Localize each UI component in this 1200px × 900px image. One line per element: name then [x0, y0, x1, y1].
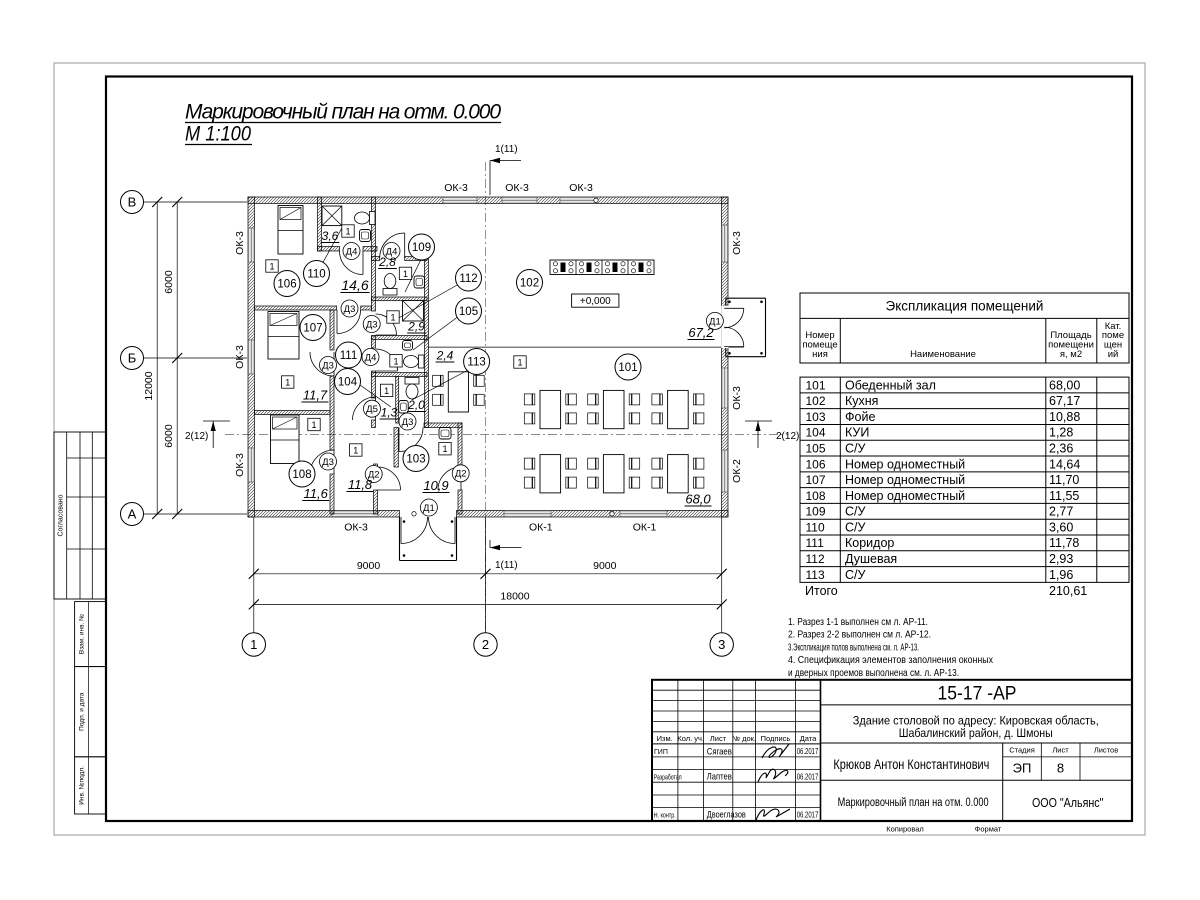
svg-text:67,2: 67,2: [688, 325, 714, 340]
svg-text:111: 111: [340, 350, 357, 362]
svg-text:1,28: 1,28: [1049, 426, 1073, 440]
svg-text:ОК-3: ОК-3: [731, 386, 743, 410]
svg-text:ОК-3: ОК-3: [505, 182, 529, 194]
svg-text:15-17 -АР: 15-17 -АР: [938, 684, 1017, 705]
svg-text:ОК-1: ОК-1: [633, 522, 657, 534]
svg-text:С/У: С/У: [845, 505, 866, 519]
svg-text:ОК-3: ОК-3: [731, 231, 743, 255]
svg-text:104: 104: [338, 377, 358, 389]
svg-text:Двоеглазов: Двоеглазов: [707, 810, 746, 821]
svg-text:Наименование: Наименование: [910, 349, 976, 360]
svg-text:Итого: Итого: [805, 584, 838, 598]
svg-text:Д5: Д5: [366, 404, 378, 415]
svg-text:1: 1: [250, 637, 257, 652]
svg-text:КУИ: КУИ: [845, 426, 869, 440]
svg-text:11,7: 11,7: [303, 388, 328, 403]
svg-text:Кухня: Кухня: [845, 394, 878, 408]
svg-text:11,70: 11,70: [1049, 473, 1079, 487]
svg-text:Маркировочный план на отм. 0.: Маркировочный план на отм. 0.000: [838, 797, 989, 809]
svg-text:Д3: Д3: [366, 319, 378, 330]
svg-text:68,00: 68,00: [1049, 378, 1080, 392]
svg-text:Номер одноместный: Номер одноместный: [845, 489, 965, 503]
svg-text:Лист: Лист: [1052, 746, 1069, 755]
svg-text:9000: 9000: [357, 560, 381, 572]
svg-text:10,9: 10,9: [423, 478, 448, 493]
svg-text:110: 110: [806, 520, 825, 534]
svg-text:103: 103: [406, 454, 425, 466]
svg-text:107: 107: [806, 473, 826, 487]
svg-text:Б: Б: [128, 351, 137, 366]
svg-text:2,9: 2,9: [407, 320, 425, 334]
svg-text:1,96: 1,96: [1049, 568, 1073, 582]
svg-text:110: 110: [307, 269, 325, 281]
svg-text:9000: 9000: [593, 560, 617, 572]
svg-text:Д3: Д3: [344, 304, 356, 315]
svg-text:1: 1: [285, 378, 290, 388]
svg-text:3,6: 3,6: [322, 229, 339, 243]
svg-text:108: 108: [806, 489, 826, 503]
svg-text:С/У: С/У: [845, 520, 866, 534]
svg-text:106: 106: [277, 279, 296, 291]
svg-text:14,64: 14,64: [1049, 457, 1080, 471]
svg-text:Лаптев: Лаптев: [707, 772, 732, 783]
svg-text:1,3: 1,3: [381, 406, 398, 420]
svg-text:106: 106: [806, 457, 826, 471]
svg-text:С/У: С/У: [845, 568, 866, 582]
svg-text:1: 1: [353, 446, 358, 456]
svg-text:М 1:100: М 1:100: [185, 123, 251, 146]
svg-text:ОК-3: ОК-3: [234, 231, 246, 255]
svg-text:Согласовано: Согласовано: [58, 494, 65, 536]
svg-text:ГИП: ГИП: [654, 749, 668, 756]
svg-text:3.Экспликация полов выполнена: 3.Экспликация полов выполнена см. л. АР-…: [788, 642, 919, 653]
svg-text:06.2017: 06.2017: [797, 810, 819, 819]
svg-text:Разработал: Разработал: [654, 773, 682, 782]
svg-text:Стадия: Стадия: [1009, 746, 1035, 755]
svg-text:6000: 6000: [163, 424, 175, 448]
svg-text:06.2017: 06.2017: [797, 772, 819, 781]
svg-text:11,8: 11,8: [348, 477, 373, 492]
svg-text:112: 112: [806, 552, 825, 566]
svg-text:113: 113: [806, 568, 825, 582]
svg-text:Д4: Д4: [365, 352, 377, 363]
svg-text:Фойе: Фойе: [845, 410, 875, 424]
svg-text:ий: ий: [1108, 349, 1119, 360]
svg-text:3: 3: [718, 637, 725, 652]
svg-text:102: 102: [520, 278, 539, 290]
svg-text:2,0: 2,0: [407, 398, 425, 412]
svg-text:10,88: 10,88: [1049, 410, 1080, 424]
svg-text:Дата: Дата: [800, 734, 817, 743]
svg-text:2(12): 2(12): [776, 431, 799, 442]
svg-text:1(11): 1(11): [495, 144, 518, 155]
svg-text:Копировал: Копировал: [886, 825, 924, 834]
svg-text:Подпись: Подпись: [761, 734, 791, 743]
svg-text:Н. контр.: Н. контр.: [654, 811, 676, 820]
svg-text:8: 8: [1057, 761, 1064, 776]
svg-text:1: 1: [311, 420, 316, 430]
svg-text:ОК-2: ОК-2: [731, 459, 743, 483]
svg-text:Листов: Листов: [1094, 746, 1118, 755]
svg-text:67,17: 67,17: [1049, 394, 1080, 408]
svg-text:Коридор: Коридор: [845, 536, 894, 550]
svg-text:6000: 6000: [163, 270, 175, 294]
svg-text:Номер одноместный: Номер одноместный: [845, 457, 965, 471]
svg-text:1: 1: [384, 386, 389, 396]
svg-text:104: 104: [806, 426, 826, 440]
svg-text:06.2017: 06.2017: [797, 747, 819, 756]
svg-text:2,93: 2,93: [1049, 552, 1073, 566]
svg-text:1: 1: [393, 356, 398, 366]
svg-text:2,4: 2,4: [436, 349, 454, 363]
svg-text:107: 107: [303, 323, 322, 335]
svg-text:14,6: 14,6: [341, 277, 368, 293]
svg-text:ния: ния: [812, 349, 828, 360]
svg-text:Крюков Антон Константинович: Крюков Антон Константинович: [833, 757, 989, 772]
svg-text:Д3: Д3: [322, 360, 334, 371]
svg-text:113: 113: [467, 357, 485, 369]
svg-text:ОК-3: ОК-3: [344, 522, 368, 534]
svg-text:1. Разрез 1-1 выполнен см л. А: 1. Разрез 1-1 выполнен см л. АР-11.: [788, 617, 928, 628]
svg-text:1(11): 1(11): [495, 560, 518, 571]
svg-text:Подп. и дата: Подп. и дата: [79, 692, 86, 731]
svg-text:Формат: Формат: [975, 825, 1002, 834]
svg-text:ОК-3: ОК-3: [234, 453, 246, 477]
svg-text:я, м2: я, м2: [1060, 349, 1082, 360]
svg-text:109: 109: [806, 505, 826, 519]
svg-text:1: 1: [442, 444, 447, 454]
svg-text:18000: 18000: [500, 591, 529, 603]
svg-text:Номер одноместный: Номер одноместный: [845, 473, 965, 487]
svg-text:Экспликация помещений: Экспликация помещений: [886, 299, 1044, 314]
svg-text:Д1: Д1: [423, 503, 435, 514]
svg-text:105: 105: [806, 441, 826, 455]
svg-text:2,77: 2,77: [1049, 505, 1073, 519]
svg-text:11,55: 11,55: [1049, 489, 1079, 503]
svg-text:№ док.: № док.: [732, 734, 756, 743]
svg-text:112: 112: [459, 273, 477, 285]
svg-text:1: 1: [517, 358, 522, 368]
svg-text:ОК-3: ОК-3: [234, 345, 246, 369]
svg-text:2(12): 2(12): [185, 431, 208, 442]
svg-text:1: 1: [269, 262, 274, 272]
svg-text:Кол. уч.: Кол. уч.: [677, 734, 704, 743]
svg-text:В: В: [128, 195, 137, 210]
svg-text:Шабалинский район, д. Шмоны: Шабалинский район, д. Шмоны: [899, 726, 1053, 740]
svg-text:Обеденный зал: Обеденный зал: [845, 378, 936, 392]
svg-text:Лист: Лист: [710, 734, 727, 743]
svg-text:Инв. №подл.: Инв. №подл.: [79, 766, 86, 805]
svg-text:ЭП: ЭП: [1013, 761, 1032, 776]
svg-text:С/У: С/У: [845, 441, 866, 455]
svg-text:Сягаев: Сягаев: [707, 747, 732, 758]
svg-text:101: 101: [618, 362, 637, 374]
svg-text:101: 101: [806, 378, 826, 392]
svg-text:2,8: 2,8: [378, 255, 396, 269]
svg-text:2: 2: [482, 637, 489, 652]
svg-text:68,0: 68,0: [685, 492, 711, 507]
svg-text:Д3: Д3: [322, 457, 334, 468]
svg-text:Д3: Д3: [402, 417, 414, 428]
svg-text:109: 109: [412, 242, 431, 254]
svg-text:Д4: Д4: [346, 246, 358, 257]
svg-text:и дверных проемов выполнена с: и дверных проемов выполнена см. л. АР-13…: [788, 668, 959, 679]
svg-text:2. Разрез 2-2 выполнен см л. А: 2. Разрез 2-2 выполнен см л. АР-12.: [788, 630, 931, 641]
svg-text:103: 103: [806, 410, 826, 424]
svg-text:ОК-1: ОК-1: [529, 522, 553, 534]
svg-text:1: 1: [403, 269, 408, 279]
svg-text:11,6: 11,6: [304, 486, 329, 501]
svg-text:3,60: 3,60: [1049, 520, 1073, 534]
svg-text:108: 108: [292, 469, 311, 481]
svg-text:ООО "Альянс": ООО "Альянс": [1032, 796, 1104, 810]
svg-text:Душевая: Душевая: [845, 552, 897, 566]
svg-text:ОК-3: ОК-3: [569, 182, 593, 194]
svg-text:2,36: 2,36: [1049, 441, 1073, 455]
svg-text:Взам. инв. №: Взам. инв. №: [79, 614, 86, 654]
svg-text:105: 105: [459, 306, 478, 318]
svg-text:102: 102: [806, 394, 826, 408]
svg-text:111: 111: [806, 536, 825, 550]
svg-text:210,61: 210,61: [1049, 584, 1087, 598]
svg-text:4. Спецификация элементов запо: 4. Спецификация элементов заполнения око…: [788, 654, 993, 666]
svg-text:А: А: [128, 507, 137, 522]
svg-text:+0,000: +0,000: [580, 296, 611, 307]
svg-text:12000: 12000: [143, 371, 155, 400]
svg-text:Маркировочный план на отм. 0.: Маркировочный план на отм. 0.000: [185, 101, 501, 124]
svg-text:1: 1: [390, 313, 395, 323]
svg-text:Изм.: Изм.: [657, 734, 673, 743]
svg-text:ОК-3: ОК-3: [444, 182, 468, 194]
svg-text:1: 1: [345, 227, 350, 237]
svg-text:Д2: Д2: [455, 469, 467, 480]
svg-text:11,78: 11,78: [1049, 536, 1079, 550]
